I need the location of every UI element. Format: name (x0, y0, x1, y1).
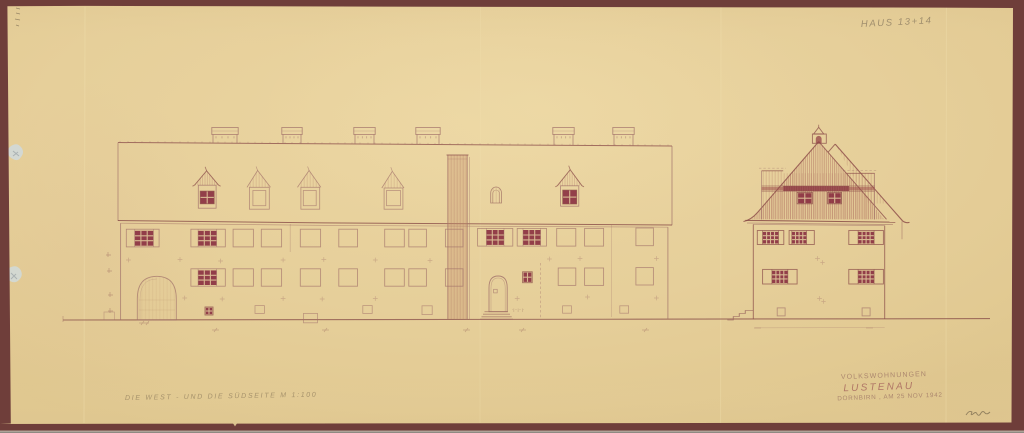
svg-text:·|··|··|·: ·|··|··|· (512, 308, 524, 312)
